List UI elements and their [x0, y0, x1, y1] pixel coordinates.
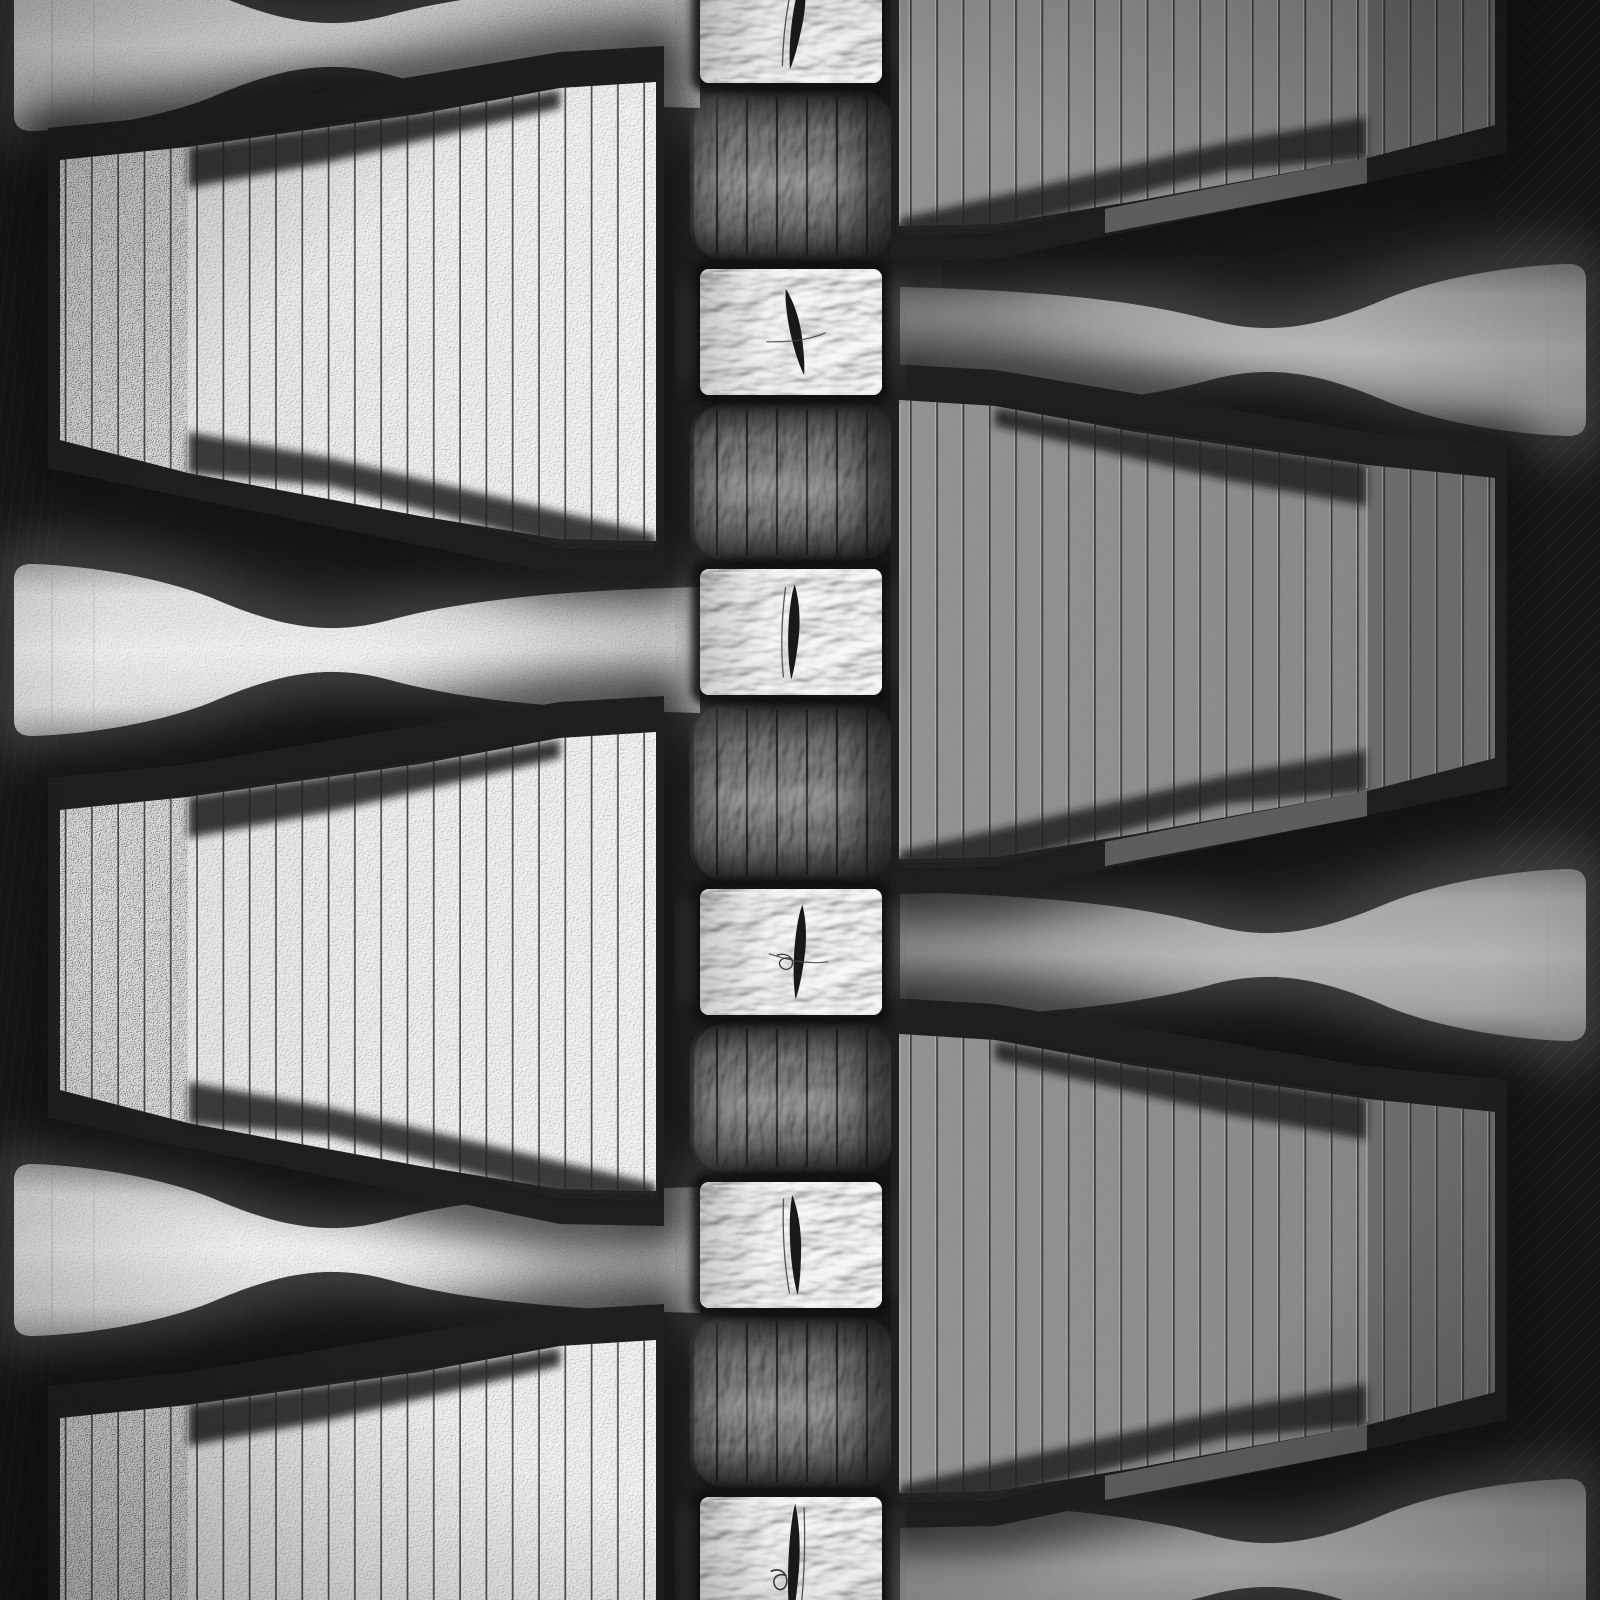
photo-stage: Rubber track tread pattern close-up	[0, 0, 1600, 1600]
vignette-overlay	[0, 0, 1600, 1600]
rubber-track-photo: Rubber track tread pattern close-up	[0, 0, 1600, 1600]
